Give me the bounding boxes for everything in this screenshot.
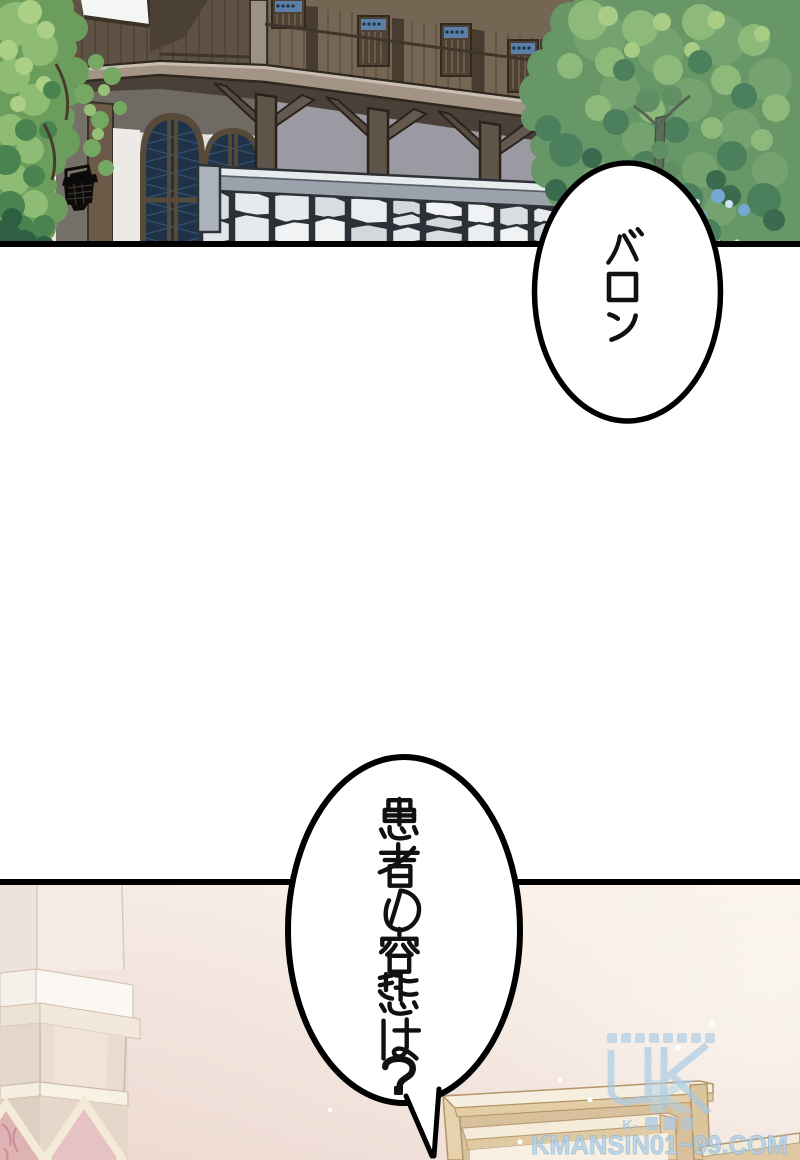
svg-text:KMANSIN01~99.COM: KMANSIN01~99.COM — [531, 1130, 788, 1160]
